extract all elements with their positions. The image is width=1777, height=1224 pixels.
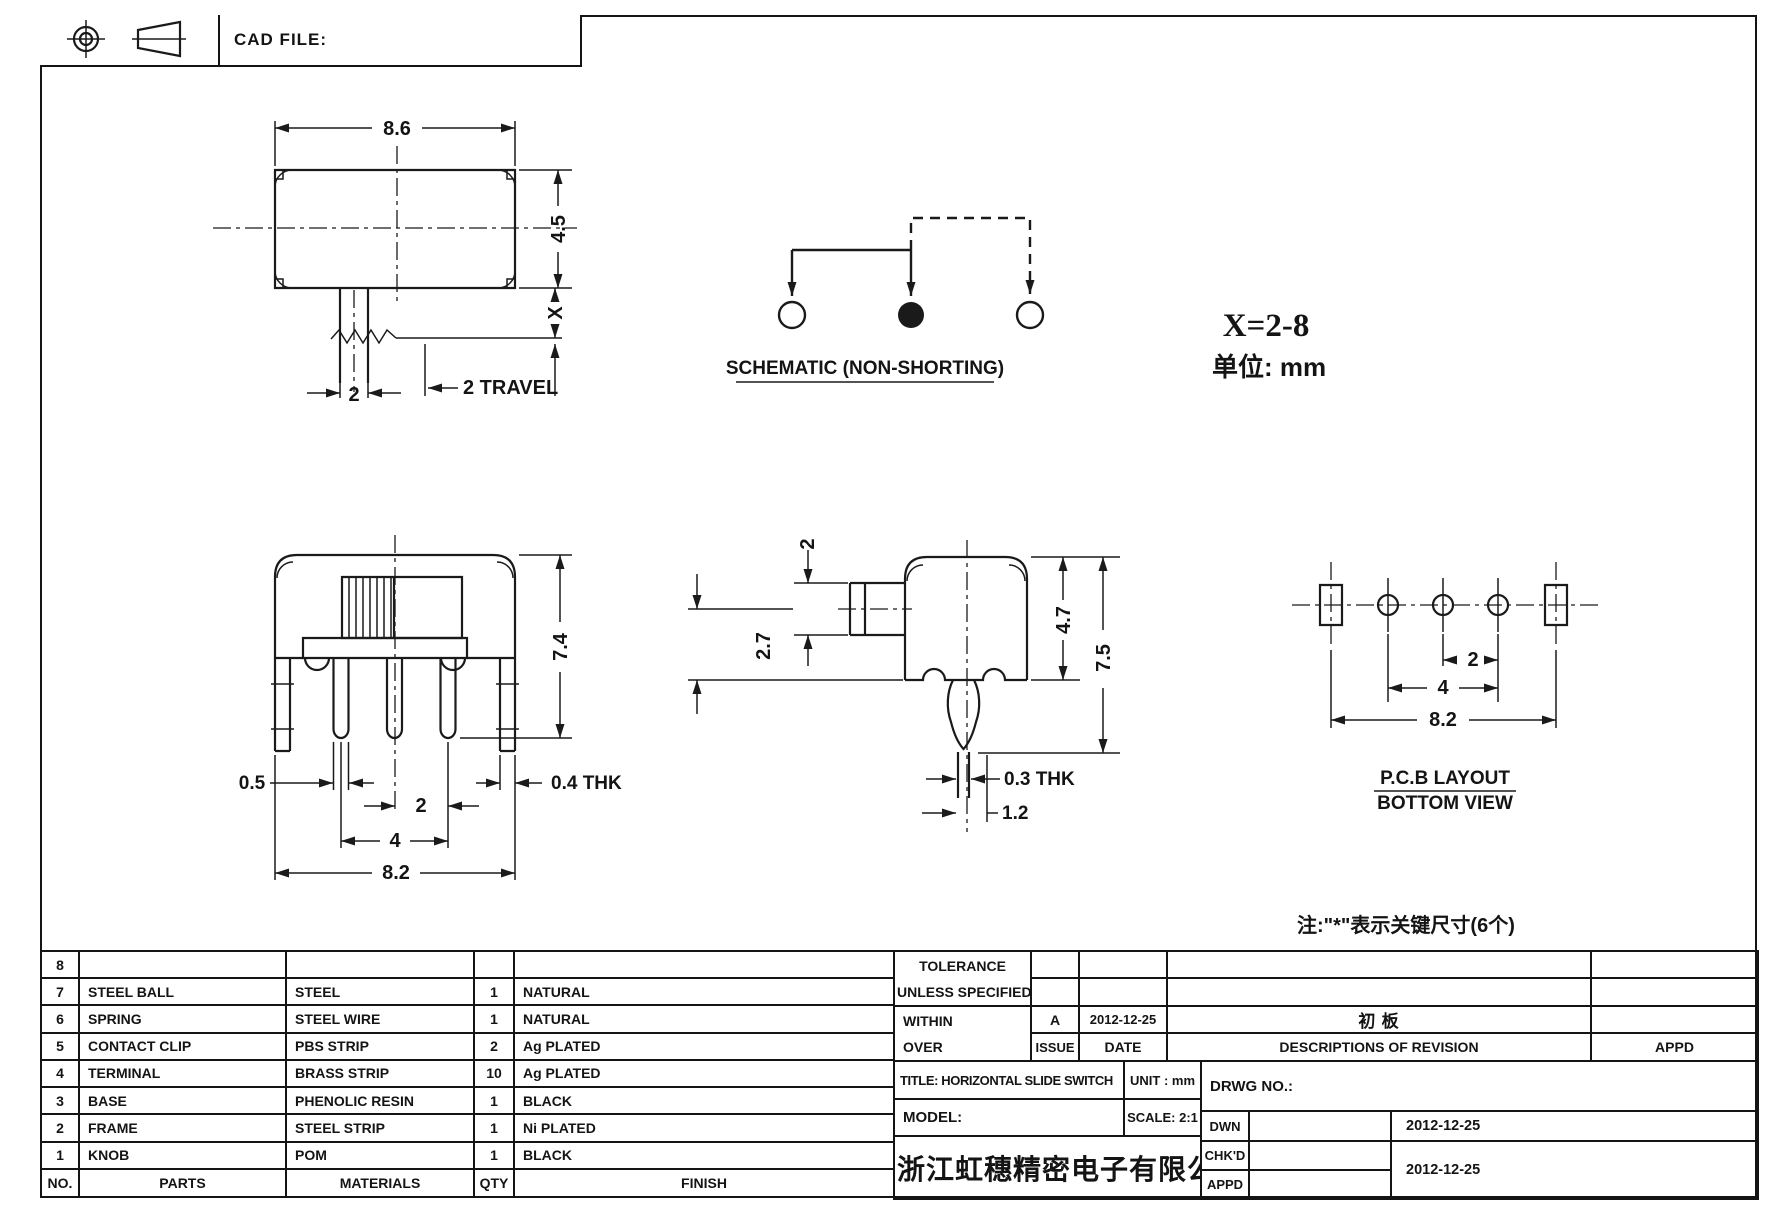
part-qty: 10 — [474, 1060, 514, 1087]
unit-note: 单位: mm — [1212, 352, 1326, 382]
date-label: DATE — [1079, 1033, 1167, 1061]
within-label: WITHIN — [897, 1008, 1028, 1034]
pin-pitch-dim: 2 — [415, 795, 426, 817]
model-label: MODEL: — [894, 1099, 1124, 1136]
top-view-height-dim: 4.5 — [548, 215, 570, 243]
part-name: STEEL BALL — [79, 978, 286, 1005]
part-name: KNOB — [79, 1142, 286, 1169]
terminal-circle-center — [898, 302, 924, 328]
part-name — [79, 951, 286, 978]
part-finish: NATURAL — [514, 1005, 894, 1032]
part-qty: 1 — [474, 1087, 514, 1114]
within-over-cell: WITHIN OVER — [894, 1006, 1031, 1061]
tolerance-line2: UNLESS SPECIFIED — [897, 979, 1028, 1005]
pcb-layout-label: P.C.B LAYOUT — [1380, 768, 1510, 789]
part-no: 7 — [41, 978, 79, 1005]
part-material: PHENOLIC RESIN — [286, 1087, 474, 1114]
part-qty — [474, 951, 514, 978]
dwn-label: DWN — [1201, 1111, 1249, 1141]
title-block-left: TITLE: HORIZONTAL SLIDE SWITCH UNIT : mm… — [893, 1060, 1202, 1200]
title-block-right: DRWG NO.: DWN 2012-12-25 CHK'D 2012-12-2… — [1200, 1060, 1759, 1200]
tolerance-cell: TOLERANCE UNLESS SPECIFIED — [894, 951, 1031, 1006]
x-range-note: X=2-8 — [1223, 308, 1310, 344]
issue-value: A — [1031, 1006, 1079, 1033]
revision-description-value: 初 板 — [1167, 1006, 1591, 1033]
scale-value: SCALE: 2:1 — [1124, 1099, 1201, 1136]
part-finish: Ag PLATED — [514, 1033, 894, 1060]
over-label: OVER — [897, 1034, 1028, 1060]
part-material: STEEL WIRE — [286, 1005, 474, 1032]
part-no: 5 — [41, 1033, 79, 1060]
chkd-label: CHK'D — [1201, 1141, 1249, 1170]
terminal-thickness-dim: 0.3 THK — [1004, 769, 1075, 790]
appd-column-label: APPD — [1591, 1033, 1758, 1061]
engineering-drawing-sheet: { "header": { "cad_file": "CAD FILE:" },… — [0, 0, 1777, 1224]
revision-empty-cell — [1591, 978, 1758, 1006]
part-material — [286, 951, 474, 978]
pcb-layout: 2 4 8.2 P.C.B LAYOUT BOTTOM VIEW — [1292, 562, 1602, 814]
revision-empty-cell — [1031, 978, 1079, 1006]
side-view: 2 2.7 4.7 7.5 0.3 THK 1.2 — [688, 538, 1120, 832]
table-row: 8 — [41, 951, 894, 978]
stem-width-dim: 2 — [348, 384, 359, 406]
pcb-span-dim: 4 — [1437, 677, 1449, 699]
dwn-date: 2012-12-25 — [1391, 1111, 1758, 1141]
part-no: 6 — [41, 1005, 79, 1032]
issue-label: ISSUE — [1031, 1033, 1079, 1061]
part-no: 2 — [41, 1114, 79, 1141]
revision-empty-cell — [1167, 951, 1591, 978]
appd-signature-cell — [1249, 1170, 1391, 1199]
part-finish: BLACK — [514, 1087, 894, 1114]
part-name: BASE — [79, 1087, 286, 1114]
issue-date-value: 2012-12-25 — [1079, 1006, 1167, 1033]
top-view: 8.6 4.5 X 2 TRAVEL 2 — [213, 118, 577, 406]
part-no: 1 — [41, 1142, 79, 1169]
part-material: BRASS STRIP — [286, 1060, 474, 1087]
appd-label: APPD — [1201, 1170, 1249, 1199]
part-name: SPRING — [79, 1005, 286, 1032]
bottom-view-label: BOTTOM VIEW — [1377, 793, 1513, 814]
part-no: 4 — [41, 1060, 79, 1087]
revision-empty-cell — [1079, 951, 1167, 978]
part-finish: BLACK — [514, 1142, 894, 1169]
knob-height-dim: 2 — [797, 538, 819, 549]
part-qty: 2 — [474, 1033, 514, 1060]
col-header-finish: FINISH — [514, 1169, 894, 1197]
chkd-signature-cell — [1249, 1141, 1391, 1170]
technical-drawing: 8.6 4.5 X 2 TRAVEL 2 SCHEMATIC (NON-SHOR… — [0, 0, 1777, 950]
knob-offset-dim: 2.7 — [753, 632, 775, 660]
tolerance-line1: TOLERANCE — [897, 953, 1028, 979]
table-row: 4 TERMINAL BRASS STRIP 10 Ag PLATED — [41, 1060, 894, 1087]
part-material: POM — [286, 1142, 474, 1169]
part-finish — [514, 951, 894, 978]
unit-value: UNIT : mm — [1124, 1061, 1201, 1099]
travel-dim: 2 TRAVEL — [463, 377, 558, 399]
part-no: 3 — [41, 1087, 79, 1114]
col-header-qty: QTY — [474, 1169, 514, 1197]
part-qty: 1 — [474, 1114, 514, 1141]
side-total-height-dim: 7.5 — [1093, 644, 1115, 672]
part-qty: 1 — [474, 1142, 514, 1169]
table-row: 1 KNOB POM 1 BLACK — [41, 1142, 894, 1169]
pcb-pitch-dim: 2 — [1467, 649, 1478, 671]
key-dimension-note: 注:"*"表示关键尺寸(6个) — [1297, 913, 1515, 937]
part-material: PBS STRIP — [286, 1033, 474, 1060]
revision-empty-cell — [1167, 978, 1591, 1006]
table-row: 7 STEEL BALL STEEL 1 NATURAL — [41, 978, 894, 1005]
terminal-circle-right — [1017, 302, 1043, 328]
part-finish: Ag PLATED — [514, 1060, 894, 1087]
part-qty: 1 — [474, 1005, 514, 1032]
table-row: 6 SPRING STEEL WIRE 1 NATURAL — [41, 1005, 894, 1032]
drawing-number-label: DRWG NO.: — [1201, 1061, 1758, 1111]
schematic-label: SCHEMATIC (NON-SHORTING) — [726, 358, 1004, 379]
table-row: 2 FRAME STEEL STRIP 1 Ni PLATED — [41, 1114, 894, 1141]
dwn-signature-cell — [1249, 1111, 1391, 1141]
drawing-title: TITLE: HORIZONTAL SLIDE SWITCH — [894, 1061, 1124, 1099]
part-name: FRAME — [79, 1114, 286, 1141]
col-header-materials: MATERIALS — [286, 1169, 474, 1197]
revision-block: TOLERANCE UNLESS SPECIFIED WITHIN OVER A… — [893, 950, 1759, 1062]
frame-thickness-dim: 0.4 THK — [551, 773, 622, 794]
top-view-width-dim: 8.6 — [383, 118, 411, 140]
schematic-diagram: SCHEMATIC (NON-SHORTING) — [726, 218, 1043, 382]
revision-appd-empty — [1591, 1006, 1758, 1033]
revision-empty-cell — [1031, 951, 1079, 978]
descriptions-label: DESCRIPTIONS OF REVISION — [1167, 1033, 1591, 1061]
side-body-height-dim: 4.7 — [1053, 606, 1075, 634]
table-row: 3 BASE PHENOLIC RESIN 1 BLACK — [41, 1087, 894, 1114]
part-material: STEEL STRIP — [286, 1114, 474, 1141]
terminal-circle-left — [779, 302, 805, 328]
front-height-dim: 7.4 — [550, 632, 572, 661]
table-header-row: NO. PARTS MATERIALS QTY FINISH — [41, 1169, 894, 1197]
part-finish: Ni PLATED — [514, 1114, 894, 1141]
pin-width-dim: 0.5 — [239, 773, 266, 794]
part-no: 8 — [41, 951, 79, 978]
col-header-parts: PARTS — [79, 1169, 286, 1197]
front-total-width-dim: 8.2 — [382, 862, 410, 884]
chkd-appd-date: 2012-12-25 — [1391, 1141, 1758, 1199]
table-row: 5 CONTACT CLIP PBS STRIP 2 Ag PLATED — [41, 1033, 894, 1060]
revision-empty-cell — [1079, 978, 1167, 1006]
pcb-total-dim: 8.2 — [1429, 709, 1457, 731]
part-name: TERMINAL — [79, 1060, 286, 1087]
part-name: CONTACT CLIP — [79, 1033, 286, 1060]
tip-length-dim: 1.2 — [1002, 803, 1028, 824]
col-header-no: NO. — [41, 1169, 79, 1197]
front-view: 7.4 0.5 0.4 THK 2 4 8.2 — [239, 535, 622, 884]
part-material: STEEL — [286, 978, 474, 1005]
company-name: 浙江虹穗精密电子有限公司 — [894, 1136, 1201, 1199]
parts-table: 8 7 STEEL BALL STEEL 1 NATURAL 6 SPRING … — [40, 950, 895, 1198]
part-qty: 1 — [474, 978, 514, 1005]
revision-empty-cell — [1591, 951, 1758, 978]
top-view-x-dim: X — [545, 306, 567, 320]
drawing-notes: X=2-8 单位: mm 注:"*"表示关键尺寸(6个) — [1212, 308, 1515, 937]
pin-span-dim: 4 — [389, 830, 401, 852]
part-finish: NATURAL — [514, 978, 894, 1005]
